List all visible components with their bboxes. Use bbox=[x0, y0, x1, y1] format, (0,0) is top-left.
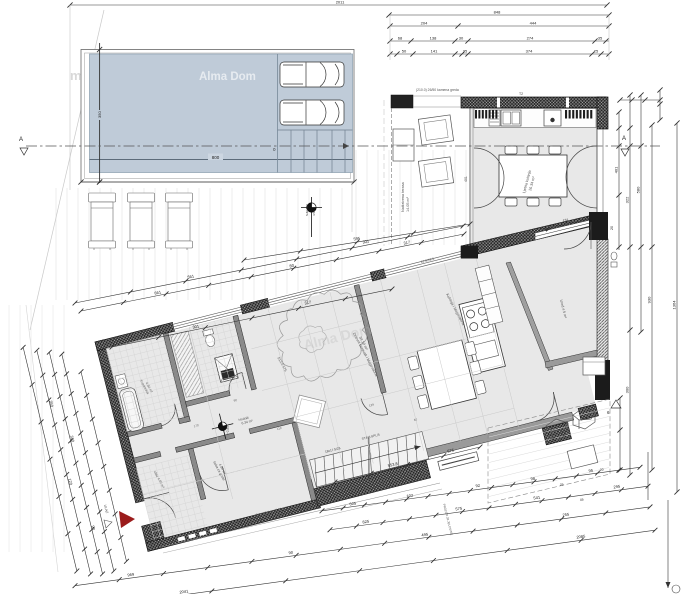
svg-text:SJEVER: SJEVER bbox=[305, 203, 309, 216]
svg-text:25: 25 bbox=[463, 49, 468, 54]
svg-text:350: 350 bbox=[97, 111, 102, 118]
svg-text:401: 401 bbox=[614, 166, 619, 173]
svg-text:401: 401 bbox=[464, 176, 468, 182]
svg-text:274: 274 bbox=[527, 36, 534, 41]
svg-text:2041: 2041 bbox=[179, 588, 189, 594]
svg-text:A: A bbox=[19, 137, 23, 143]
svg-text:25: 25 bbox=[594, 49, 599, 54]
svg-text:138: 138 bbox=[430, 36, 437, 41]
svg-text:930: 930 bbox=[647, 296, 652, 303]
svg-text:20: 20 bbox=[600, 467, 604, 471]
svg-text:Natkrivena terasa: Natkrivena terasa bbox=[401, 181, 405, 212]
svg-text:1364: 1364 bbox=[672, 300, 677, 310]
svg-text:141: 141 bbox=[431, 49, 438, 54]
svg-text:25: 25 bbox=[560, 482, 564, 486]
svg-text:30: 30 bbox=[459, 36, 464, 41]
svg-text:374: 374 bbox=[526, 49, 533, 54]
svg-text:(210.0) 26/50 kamena greda: (210.0) 26/50 kamena greda bbox=[416, 88, 459, 92]
svg-text:m: m bbox=[70, 68, 82, 83]
svg-text:A: A bbox=[622, 136, 626, 142]
svg-text:T2: T2 bbox=[519, 92, 523, 96]
svg-text:35: 35 bbox=[598, 36, 603, 41]
svg-text:+2.80: +2.80 bbox=[226, 426, 230, 434]
svg-text:50: 50 bbox=[402, 49, 407, 54]
svg-text:204: 204 bbox=[421, 21, 428, 26]
svg-text:20: 20 bbox=[610, 226, 614, 230]
svg-text:45: 45 bbox=[580, 497, 584, 501]
svg-text:444: 444 bbox=[530, 21, 537, 26]
svg-text:4.55: 4.55 bbox=[312, 210, 316, 216]
svg-text:848: 848 bbox=[494, 10, 501, 15]
svg-text:800: 800 bbox=[212, 155, 220, 160]
svg-text:300: 300 bbox=[625, 386, 630, 393]
svg-text:580: 580 bbox=[636, 186, 641, 193]
svg-text:68: 68 bbox=[398, 36, 403, 41]
svg-text:2011: 2011 bbox=[336, 0, 345, 5]
svg-text:14.05 m²: 14.05 m² bbox=[406, 196, 410, 212]
svg-text:322: 322 bbox=[625, 196, 630, 203]
svg-text:Alma Dom: Alma Dom bbox=[199, 71, 256, 83]
